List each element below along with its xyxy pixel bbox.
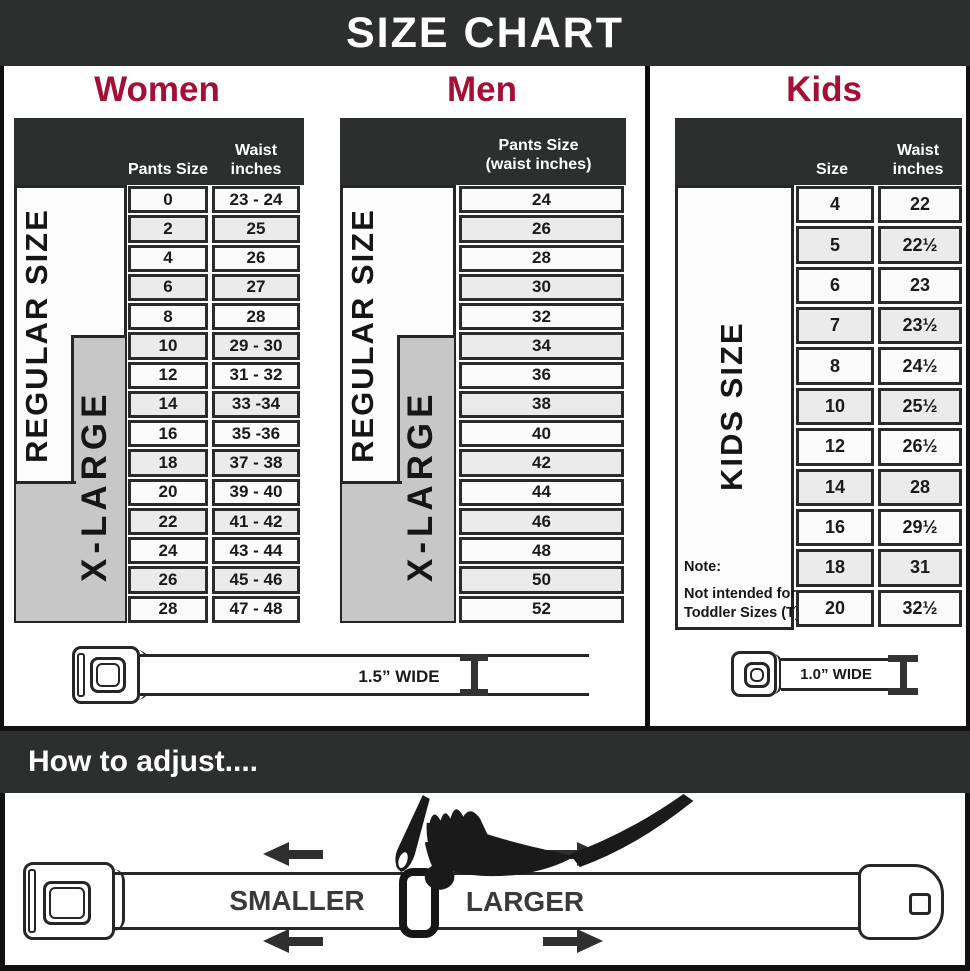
how-to-adjust-band: How to adjust.... [0, 731, 970, 793]
seatbelt-buckle-icon [23, 862, 115, 940]
kids-size-header: Size [792, 161, 872, 180]
men-xlarge-label: X-LARGE [401, 348, 441, 624]
table-row: 40 [459, 420, 624, 447]
title-banner: SIZE CHART [0, 0, 970, 66]
table-row: 24 [459, 186, 624, 213]
seatbelt-buckle-icon [731, 651, 777, 697]
buckle-button [744, 662, 770, 688]
table-row: 1831 [796, 549, 962, 586]
adult-belt-width-label: 1.5” WIDE [344, 667, 454, 687]
table-row: 44 [459, 479, 624, 506]
how-to-adjust-heading: How to adjust.... [28, 745, 258, 779]
table-row: 52 [459, 596, 624, 623]
table-row: 2847 - 48 [128, 596, 300, 623]
adjust-illustration: SMALLER LARGER [0, 793, 970, 971]
table-row: 42 [459, 449, 624, 476]
kids-size-categories: KIDS SIZE Note: Not intended for Toddler… [675, 185, 794, 630]
table-row: 1029 - 30 [128, 332, 300, 359]
kids-size-label: KIDS SIZE [714, 304, 750, 508]
women-table-rows: 023 - 24 225 426 627 828 1029 - 30 1231 … [128, 186, 300, 623]
buckle-cap [28, 869, 36, 933]
buckle-latch [113, 869, 125, 931]
table-row: 2039 - 40 [128, 479, 300, 506]
table-row: 38 [459, 391, 624, 418]
section-divider [645, 66, 650, 726]
kids-waist-header: Waist inches [878, 142, 958, 180]
table-row: 1837 - 38 [128, 449, 300, 476]
table-row: 623 [796, 267, 962, 304]
kids-note: Note: Not intended for Toddler Sizes (T) [684, 558, 800, 623]
table-row: 1428 [796, 469, 962, 506]
table-row: 426 [128, 245, 300, 272]
page-title: SIZE CHART [346, 9, 624, 58]
table-row: 34 [459, 332, 624, 359]
women-table-header: Pants Size Waist inches [14, 118, 304, 185]
women-regular-size-label: REGULAR SIZE [19, 192, 55, 480]
women-size-categories: REGULAR SIZE X-LARGE [14, 185, 127, 623]
kids-heading: Kids [734, 70, 914, 110]
table-row: 1433 -34 [128, 391, 300, 418]
chart-content: Women Men Kids Pants Size Waist inches P… [0, 66, 970, 731]
table-row: 723½ [796, 307, 962, 344]
men-size-categories: REGULAR SIZE X-LARGE [340, 185, 456, 623]
table-row: 48 [459, 537, 624, 564]
width-measure-icon [888, 655, 918, 695]
belt-tip-icon [858, 864, 944, 940]
men-regular-size-label: REGULAR SIZE [345, 192, 381, 480]
women-waist-header: Waist inches [212, 142, 300, 180]
buckle-cap [77, 653, 85, 697]
table-row: 422 [796, 186, 962, 223]
table-row: 46 [459, 508, 624, 535]
table-row: 1231 - 32 [128, 362, 300, 389]
belt-tip-hole [909, 893, 931, 915]
smaller-label: SMALLER [227, 885, 367, 917]
buckle-button [43, 881, 91, 925]
table-row: 32 [459, 303, 624, 330]
size-chart-page: SIZE CHART Women Men Kids Pants Size Wai… [0, 0, 970, 971]
table-row: 50 [459, 566, 624, 593]
table-row: 627 [128, 274, 300, 301]
table-row: 522½ [796, 226, 962, 263]
adjusting-hand-icon [375, 793, 755, 951]
table-row: 2443 - 44 [128, 537, 300, 564]
table-row: 1629½ [796, 509, 962, 546]
table-row: 225 [128, 215, 300, 242]
women-xlarge-zone-bottom [16, 481, 76, 621]
table-row: 2645 - 46 [128, 566, 300, 593]
seatbelt-buckle-icon [72, 646, 140, 704]
men-table-rows: 24 26 28 30 32 34 36 38 40 42 44 46 48 5… [459, 186, 624, 623]
arrow-left-icon [263, 929, 325, 953]
women-xlarge-label: X-LARGE [75, 348, 115, 624]
kids-table-rows: 422 522½ 623 723½ 824½ 1025½ 1226½ 1428 … [796, 186, 962, 627]
men-pants-size-header: Pants Size (waist inches) [455, 137, 622, 175]
table-row: 2241 - 42 [128, 508, 300, 535]
width-measure-icon [460, 654, 488, 696]
women-pants-size-header: Pants Size [122, 161, 214, 180]
table-row: 36 [459, 362, 624, 389]
women-heading: Women [62, 70, 252, 110]
table-row: 824½ [796, 347, 962, 384]
table-row: 28 [459, 245, 624, 272]
kids-belt-width-label: 1.0” WIDE [786, 666, 886, 683]
men-table-header: Pants Size (waist inches) [340, 118, 626, 185]
men-xlarge-zone-bottom [342, 481, 402, 621]
kids-table-header: Size Waist inches [675, 118, 962, 185]
men-heading: Men [392, 70, 572, 110]
table-row: 2032½ [796, 590, 962, 627]
table-row: 023 - 24 [128, 186, 300, 213]
table-row: 828 [128, 303, 300, 330]
table-row: 1226½ [796, 428, 962, 465]
table-row: 1025½ [796, 388, 962, 425]
arrow-left-icon [263, 842, 325, 866]
table-row: 1635 -36 [128, 420, 300, 447]
table-row: 30 [459, 274, 624, 301]
buckle-button [90, 657, 126, 693]
table-row: 26 [459, 215, 624, 242]
